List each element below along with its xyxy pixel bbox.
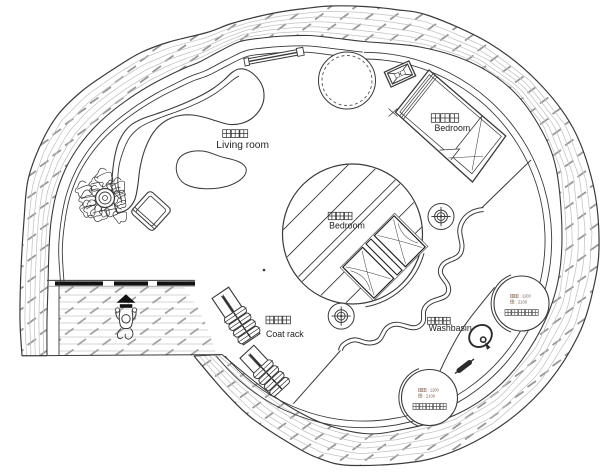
svg-text:Bedroom: Bedroom [435, 123, 471, 133]
svg-text:Bedroom: Bedroom [329, 221, 365, 231]
svg-text:Coat rack: Coat rack [266, 329, 304, 339]
svg-text:Washbasin: Washbasin [429, 323, 472, 333]
svg-text:: 2100: : 2100 [424, 393, 436, 398]
svg-text:: 1100: : 1100 [520, 294, 532, 299]
svg-text:: 2100: : 2100 [516, 299, 528, 304]
svg-text:Living room: Living room [216, 140, 269, 151]
svg-text:: 1100: : 1100 [428, 388, 440, 393]
